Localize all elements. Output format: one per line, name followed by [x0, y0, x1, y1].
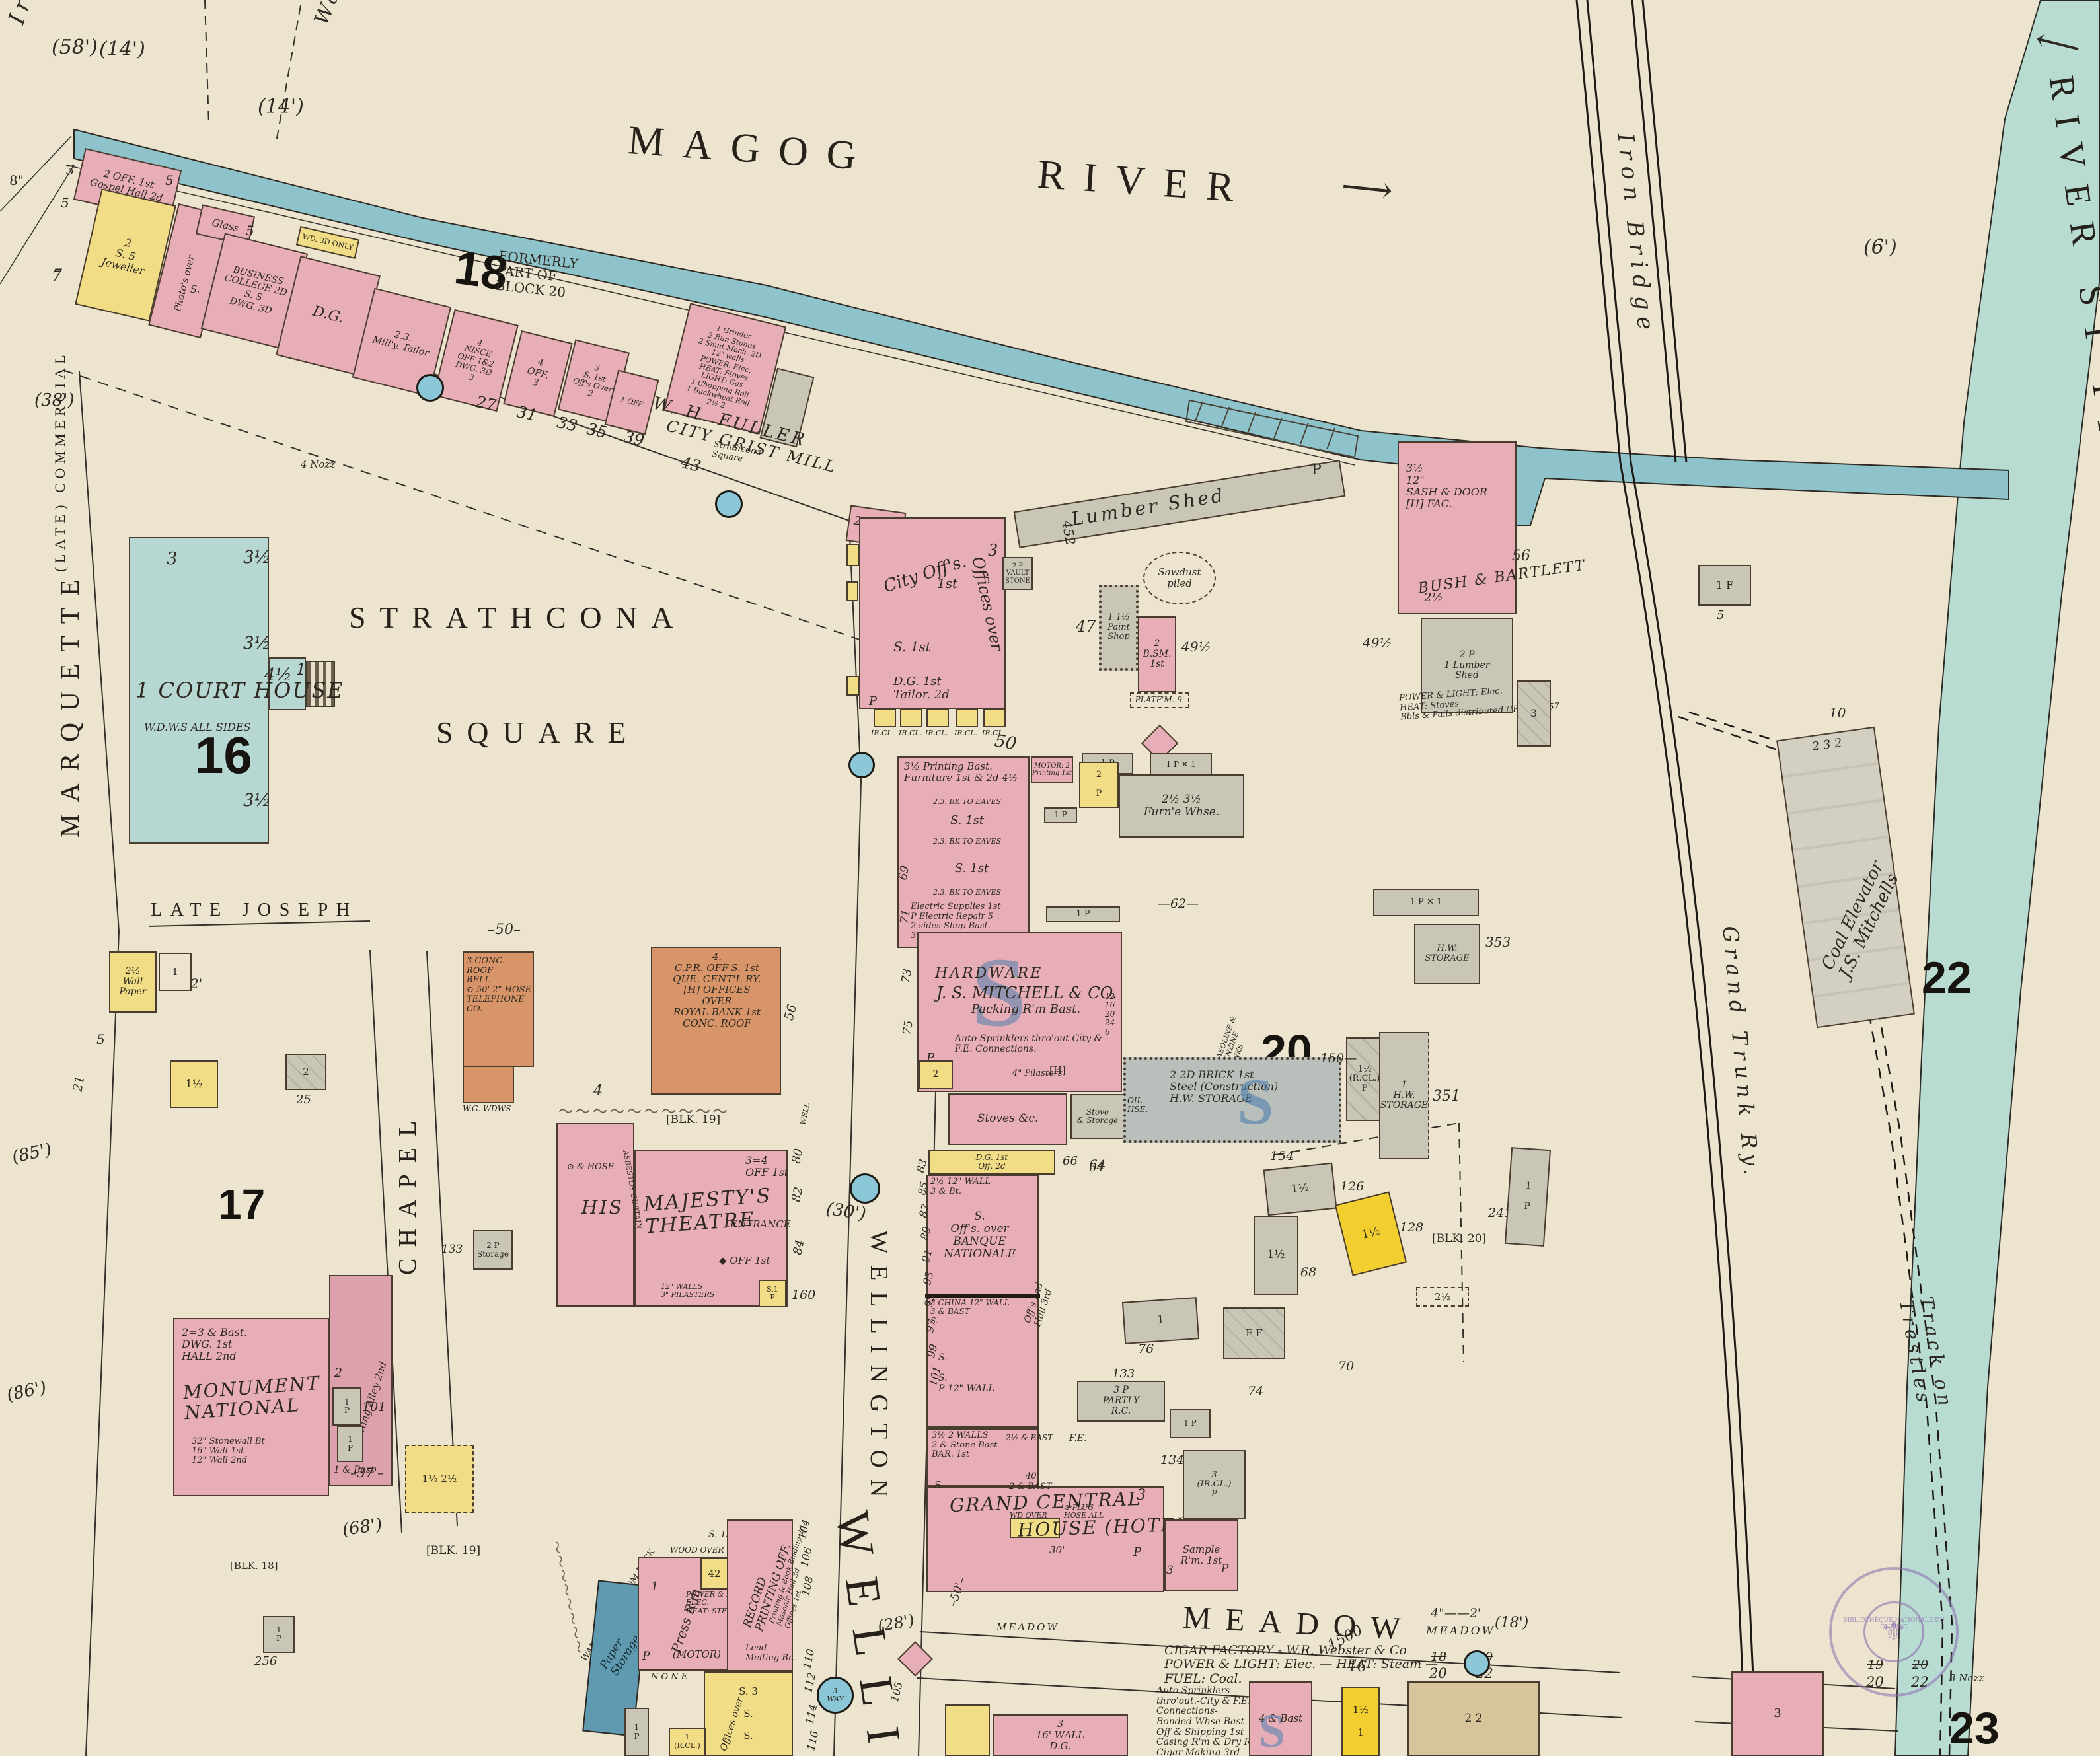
one-p-box: 1 P	[1044, 807, 1077, 823]
stoves-building: Stoves &c.	[948, 1093, 1067, 1145]
num-18-strike: 18	[1431, 1650, 1446, 1664]
num-21: 21	[71, 1075, 88, 1093]
fe-label: F.E.	[1069, 1434, 1087, 1444]
num-353: 353	[1485, 935, 1511, 949]
sample-p: P	[1221, 1563, 1228, 1576]
num-351: 351	[1433, 1089, 1460, 1105]
street-marquette-late: (LATE) COMMERCIAL	[52, 351, 69, 572]
library-stamp-inner: ⚜	[1863, 1601, 1924, 1662]
oil-house: OIL HSE.	[1127, 1097, 1148, 1115]
dim-49-b: 49½	[1363, 636, 1392, 650]
num-20a: 20	[1429, 1666, 1447, 1682]
road-50: 50	[993, 731, 1018, 754]
bk-eaves-2: 2.3. BK TO EAVES	[933, 838, 1001, 846]
gc-40: 40'	[1026, 1472, 1039, 1482]
block-22-number: 22	[1922, 953, 1972, 1003]
monument-2: 2	[334, 1366, 342, 1380]
st-num-27: 27	[474, 393, 498, 415]
city-vault: 2 P VAULT STONE	[1002, 557, 1033, 590]
courthouse-f35c: 3½	[243, 791, 271, 811]
blk18-tag: [BLK. 18]	[230, 1560, 278, 1572]
num-101: 101	[362, 1401, 386, 1414]
bell-label: 3 CONC. ROOF BELL ⊙ 50' 2" HOSE TELEPHON…	[467, 957, 531, 1014]
one-p-pair: 1 P ✕ 1	[1150, 753, 1212, 777]
stove-storage: Stove & Storage	[1070, 1094, 1125, 1139]
gc-30: 30'	[1049, 1545, 1065, 1556]
num-128: 128	[1400, 1221, 1423, 1235]
magog-flow-arrow: ⟶	[1339, 166, 1394, 211]
tree-scribbles: 〜〜〜〜〜〜〜〜〜〜	[558, 1105, 730, 1121]
blk19-tag-b: [BLK. 19]	[426, 1545, 480, 1557]
num-133a: 133	[441, 1243, 463, 1256]
mitchell-name: J. S. MITCHELL & CO.	[936, 984, 1117, 1002]
theatre-34off: 3=4 OFF 1st	[745, 1155, 788, 1179]
well-square-a	[416, 374, 444, 402]
s1st-a: S. 1st	[950, 814, 984, 827]
gray-15-tall: 1½	[1254, 1216, 1298, 1295]
bast4-s-ghost: S	[1259, 1704, 1285, 1756]
mnum-73: 73	[900, 968, 915, 984]
wall-paper-building: 2½ Wall Paper	[109, 951, 157, 1013]
num-25: 25	[296, 1093, 311, 1107]
press-p: P	[642, 1650, 650, 1663]
monument-walls: 32" Stonewall Bt 16" Wall 1st 12" Wall 2…	[192, 1437, 265, 1466]
gray-1-mid: 1	[1122, 1297, 1199, 1344]
num-154: 154	[1270, 1150, 1294, 1163]
bell-telephone-annex	[463, 1066, 514, 1103]
press-none: N O N E	[651, 1673, 687, 1683]
ircl-label-1: IR.CL.	[871, 729, 894, 737]
strip-5c: 5	[246, 223, 254, 238]
street-chapel: CHAPEL	[393, 1110, 422, 1275]
city-offices-1st: 1st	[937, 576, 957, 591]
mitchell-nums: 12 16 20 24 6	[1105, 992, 1115, 1037]
mnum-69: 69	[897, 865, 913, 881]
dim-4-2: 4"——2'	[1431, 1607, 1481, 1621]
ff-xbox: F F	[1223, 1307, 1285, 1359]
st-num-33: 33	[556, 414, 579, 435]
sample-room: Sample R'm. 1st	[1164, 1519, 1238, 1591]
banque-cell2: 3 CHINA 12" WALL 3 & BAST S.	[930, 1299, 1010, 1325]
bowling-1p-b: 1 P	[337, 1426, 363, 1462]
tan-2-2: 2 2	[1407, 1681, 1540, 1756]
nozz-4: 4 Nozz	[301, 459, 335, 470]
strip-7: 7	[52, 270, 61, 286]
dim-6: (6')	[1863, 237, 1897, 259]
gc-3: 3	[1137, 1488, 1146, 1504]
street-wellington: WELLINGTON	[864, 1230, 893, 1508]
num-160: 160	[792, 1288, 815, 1302]
dim-58: (58')	[52, 36, 98, 59]
motor-printing-tab: MOTOR: 2 Printing 1st	[1031, 756, 1073, 783]
mnum-75: 75	[901, 1019, 917, 1036]
gc-p: P	[1133, 1546, 1141, 1559]
f1-5: 5	[1717, 609, 1724, 622]
banque-cell1: 2½ 12" WALL 3 & Bt.	[930, 1177, 991, 1196]
press-1: 1	[651, 1580, 658, 1593]
num-10: 10	[1829, 706, 1846, 720]
city-offices-s1: S. 1st	[893, 640, 931, 654]
hw-storage-353: H.W. STORAGE	[1414, 924, 1480, 984]
cigar-header: CIGAR FACTORY - W.R. Webster & Co POWER …	[1164, 1644, 1438, 1686]
well-wellington	[850, 1173, 880, 1204]
dim-47: 47	[1076, 618, 1096, 636]
library-stamp-text: BIBLIOTHÈQUE NATIONALE DU QUÉBEC	[1837, 1617, 1951, 1630]
partly-rc: 3 P PARTLY R.C.	[1077, 1381, 1165, 1422]
banque-cell3: S. S. P 12" WALL	[938, 1353, 994, 1395]
dim-37: –37'–	[350, 1465, 384, 1480]
press-motor: (MOTOR)	[673, 1649, 721, 1660]
city-offices-dg: D.G. 1st Tailor. 2d	[893, 675, 950, 702]
block-16-number: 16	[195, 727, 252, 784]
num-56: 56	[1512, 548, 1530, 565]
ircl-gray: 3 (IR.CL.) P	[1183, 1450, 1246, 1519]
mitchell-packing: Packing R'm Bast.	[971, 1003, 1080, 1016]
tan-25: 2½	[1416, 1287, 1469, 1307]
num-16: 16	[1348, 1660, 1367, 1676]
dg-yellow-frag	[945, 1704, 990, 1756]
block-23-number: 23	[1949, 1703, 2000, 1753]
bell-wdws: W.G. WDWS	[463, 1105, 511, 1113]
paint-shop-building: 1 1½ Paint Shop	[1099, 585, 1139, 671]
gray-1p-slab: 1 P	[624, 1708, 649, 1756]
ircl-label-3: IR.CL.	[925, 729, 948, 737]
xbox-17: 2	[285, 1054, 326, 1090]
xbox-2: 3	[1517, 680, 1551, 747]
dim-49-a: 49½	[1181, 640, 1211, 654]
dim-66: 66	[1063, 1155, 1078, 1168]
mitchell-hardware: HARDWARE	[935, 966, 1043, 982]
rcl-tower: 1½ (R.CL.) P	[1346, 1037, 1383, 1121]
num-70: 70	[1338, 1360, 1354, 1373]
block-17-number: 17	[218, 1181, 265, 1229]
side-bay-3	[846, 676, 860, 696]
num-126: 126	[1340, 1180, 1364, 1194]
record-lead: Lead Melting Br.	[745, 1644, 794, 1663]
royal-bank-label: 4. C.P.R. OFF'S. 1st QUE. CENT'L RY. [H]…	[657, 951, 776, 1029]
ircl-label-2: IR.CL.	[899, 729, 922, 737]
blk20-tag: [BLK. 20]	[1432, 1233, 1486, 1245]
dg-off-building: D.G. 1st Off. 2d	[928, 1150, 1055, 1175]
sash-door-label: 3½ 12" SASH & DOOR [H] FAC.	[1406, 462, 1487, 510]
yellow-17-box: 1½ 2½	[405, 1445, 474, 1513]
bk-eaves-3: 2.3. BK TO EAVES	[933, 889, 1001, 896]
nozz-3: 3 Nozz	[1949, 1673, 1984, 1684]
num-74: 74	[1248, 1385, 1263, 1399]
dim-14b: (14')	[258, 96, 304, 118]
row-boxes-20: 1 P ✕ 1	[1373, 889, 1479, 916]
strathcona-square-l2: SQUARE	[436, 715, 640, 750]
hw-storage-351: 1 H.W. STORAGE	[1379, 1032, 1429, 1159]
bast-25: 2½ & BAST	[1006, 1434, 1053, 1442]
courthouse-f3: 3	[167, 550, 178, 569]
yellow-2p: 2 P	[1079, 762, 1119, 808]
bk-eaves-1: 2.3. BK TO EAVES	[933, 798, 1001, 806]
ircl-bay-1	[874, 709, 896, 727]
dim-8in: 8"	[9, 173, 24, 188]
dim-2ft: 2'	[190, 976, 202, 991]
press-wood: WOOD OVER	[670, 1546, 724, 1555]
gc-s: S.	[934, 1480, 944, 1491]
pink-3-east: 3	[1731, 1671, 1824, 1756]
city-offices-p: P	[869, 695, 877, 708]
courthouse-f35b: 3½	[243, 634, 271, 653]
hw-s-ghost: S	[1237, 1065, 1274, 1139]
num-256: 256	[254, 1655, 277, 1668]
theatre-his: HIS	[581, 1197, 624, 1218]
street-meadow-sm1: MEADOW	[996, 1622, 1059, 1633]
map-canvas: Iron Brid Water Falls 10' (58') (14') (1…	[0, 0, 2100, 1756]
strathcona-square-l1: STRATHCONA	[349, 600, 687, 635]
bowling-1p-a: 1 P	[332, 1387, 361, 1426]
sample-3: 3	[1166, 1564, 1174, 1577]
onep-133: 1 P	[1170, 1409, 1211, 1438]
sp-box: S.1 P	[759, 1280, 786, 1307]
iron-bridge-rails	[1577, 0, 1756, 1756]
num-76: 76	[1138, 1342, 1154, 1356]
ircl-label-4: IR.CL.	[954, 729, 977, 737]
side-bay-1	[846, 544, 860, 566]
mitchell-hoist: [H]	[1049, 1065, 1066, 1076]
st-num-35: 35	[585, 420, 609, 442]
city-offices-3: 3	[988, 542, 998, 560]
s1st-b: S. 1st	[955, 862, 989, 875]
banque-thick-wall	[925, 1294, 1040, 1298]
dim-5: 5	[96, 1032, 105, 1046]
mnum-71: 71	[899, 908, 914, 925]
side-bay-2	[846, 581, 858, 601]
storage-2p: 2 P Storage	[473, 1230, 513, 1270]
st-num-31: 31	[515, 403, 539, 425]
furniture-warehouse: 2½ 3½ Furn'e Whse.	[1119, 774, 1244, 838]
yellow-42: 42	[700, 1558, 728, 1590]
gray-1p-right: 1 P	[1505, 1147, 1551, 1247]
yellow-meadow: 1½ 1	[1341, 1687, 1380, 1756]
num-133: 133	[1112, 1368, 1135, 1381]
well-square-b	[715, 490, 743, 518]
rcl-small: 1 (R.CL.)	[669, 1728, 706, 1756]
photos-s-label: S.	[190, 284, 200, 295]
hydrant-3way: 3 WAY	[817, 1677, 854, 1714]
num-150: 150—	[1320, 1052, 1357, 1066]
num-64: 64	[1089, 1157, 1106, 1172]
gray-126: 1½	[1263, 1163, 1337, 1216]
gray-1p-17: 1 P	[263, 1616, 295, 1653]
ircl-bay-2	[900, 709, 922, 727]
bsm-building: 2 B.SM. 1st	[1138, 616, 1176, 692]
lot-4: 4	[593, 1083, 603, 1100]
street-marquette: MARQUETTE	[54, 567, 85, 838]
bar-label: 3½ 2 WALLS 2 & Stone Bast BAR. 1st	[932, 1431, 997, 1460]
st-num-39: 39	[622, 428, 646, 450]
strip-5a: 5	[61, 196, 69, 210]
courthouse-name: 1 COURT HOUSE	[135, 679, 344, 703]
f1-box: 1 F	[1698, 565, 1751, 606]
mitchell-sprinklers: Auto-Sprinklers thro'out City & F.E. Con…	[955, 1034, 1102, 1054]
dim-14a: (14')	[99, 38, 145, 61]
theatre-walls: 12" WALLS 3" PILASTERS	[661, 1283, 714, 1299]
dim-18f: (18')	[1495, 1615, 1528, 1632]
block-18-note: FORMERLY PART OF BLOCK 20	[495, 248, 579, 301]
ircl-bay-5	[983, 709, 1006, 727]
num-134: 134	[1160, 1453, 1184, 1467]
ircl-bay-3	[926, 709, 949, 727]
printing-bast-label: 3½ Printing Bast. Furniture 1st & 2d 4½	[904, 761, 1018, 784]
lumber-shed-p: P	[1312, 462, 1322, 479]
banque-name: S. Off's. over BANQUE NATIONALE	[944, 1210, 1016, 1261]
platform: PLATF'M. 9'	[1130, 692, 1189, 708]
yellow-15-17: 1½	[170, 1060, 218, 1108]
courthouse-f35a: 3½	[243, 548, 271, 567]
dim-62-strike: —62—	[1158, 897, 1199, 911]
courthouse-f1: 1	[296, 661, 306, 678]
theatre-hose: ⊙ & HOSE	[567, 1163, 614, 1173]
sawdust-area: Sawdust piled	[1143, 552, 1216, 604]
well-meadow	[1464, 1650, 1490, 1677]
strip-5b: 5	[165, 173, 174, 188]
well-printing	[848, 752, 875, 778]
theatre-entrance: ENTRANCE	[730, 1219, 791, 1230]
wide-1p: 1 P	[1046, 906, 1120, 922]
wp-neighbor: 1	[159, 953, 192, 991]
street-meadow-sm2: MEADOW	[1426, 1625, 1495, 1638]
theatre-off1: ◆ OFF 1st	[719, 1255, 770, 1266]
ircl-bay-4	[956, 709, 978, 727]
num-68: 68	[1300, 1266, 1316, 1280]
dg-meadow-building: 3 16' WALL D.G.	[993, 1714, 1128, 1756]
yellow-2w: 2	[919, 1060, 953, 1089]
monument-hdr: 2=3 & Bast. DWG. 1st HALL 2nd	[182, 1327, 247, 1362]
strip-3: 3	[66, 163, 75, 177]
yellow-offices: S. 3 S. S.	[704, 1671, 793, 1756]
street-late-joseph: LATE JOSEPH	[151, 900, 358, 921]
road-50b: –50–	[488, 922, 521, 939]
